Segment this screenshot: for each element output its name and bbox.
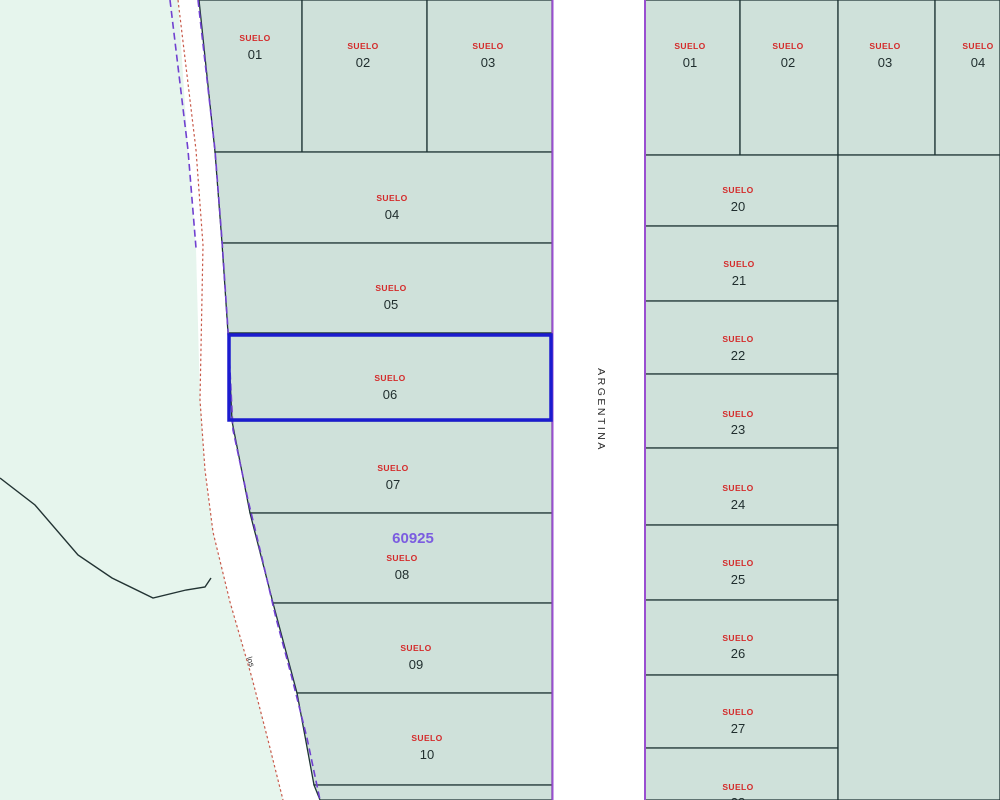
parcel-number: 06 (383, 387, 397, 402)
parcel-number: 25 (731, 572, 745, 587)
parcel-number: 23 (731, 422, 745, 437)
parcel-number: 10 (420, 747, 434, 762)
parcel-left-11-partial[interactable] (314, 785, 552, 800)
parcel-number: 22 (731, 348, 745, 363)
parcel-word: SUELO (674, 41, 705, 51)
parcel-number: 09 (409, 657, 423, 672)
parcel-number: 27 (731, 721, 745, 736)
parcel-right-large[interactable] (838, 155, 1000, 800)
right-block (645, 0, 1000, 800)
parcel-word: SUELO (722, 185, 753, 195)
parcel-word: SUELO (386, 553, 417, 563)
parcel-number: 24 (731, 497, 745, 512)
parcel-number: 01 (683, 55, 697, 70)
parcel-word: SUELO (722, 483, 753, 493)
parcel-number: 07 (386, 477, 400, 492)
parcel-number: 02 (356, 55, 370, 70)
parcel-right-02[interactable] (740, 0, 838, 155)
cadastral-map-viewport: SUELO 01 SUELO 02 SUELO 03 SUELO 04 SUEL… (0, 0, 1000, 800)
parcel-word: SUELO (722, 558, 753, 568)
parcel-number: 26 (731, 646, 745, 661)
parcel-number: 02 (781, 55, 795, 70)
parcel-word: SUELO (376, 193, 407, 203)
parcel-word: SUELO (962, 41, 993, 51)
parcel-left-03[interactable] (427, 0, 552, 152)
parcel-word: SUELO (869, 41, 900, 51)
parcel-number: 28 (731, 795, 745, 800)
parcel-word: SUELO (377, 463, 408, 473)
parcel-word: SUELO (375, 283, 406, 293)
parcel-word: SUELO (347, 41, 378, 51)
parcel-number: 04 (971, 55, 985, 70)
parcel-word: SUELO (411, 733, 442, 743)
parcel-word: SUELO (239, 33, 270, 43)
parcel-word: SUELO (722, 334, 753, 344)
parcel-number: 04 (385, 207, 399, 222)
parcel-word: SUELO (374, 373, 405, 383)
parcel-word: SUELO (722, 409, 753, 419)
parcel-number: 05 (384, 297, 398, 312)
parcel-word: SUELO (722, 707, 753, 717)
parcel-number: 01 (248, 47, 262, 62)
parcel-left-02[interactable] (302, 0, 427, 152)
parcel-number: 08 (395, 567, 409, 582)
parcel-word: SUELO (722, 782, 753, 792)
parcel-number: 20 (731, 199, 745, 214)
parcel-right-01[interactable] (645, 0, 740, 155)
parcel-number: 21 (732, 273, 746, 288)
parcel-right-03[interactable] (838, 0, 935, 155)
parcel-word: SUELO (400, 643, 431, 653)
parcel-number: 03 (481, 55, 495, 70)
parcel-word: SUELO (772, 41, 803, 51)
parcel-word: SUELO (472, 41, 503, 51)
parcel-right-04[interactable] (935, 0, 1000, 155)
parcel-word: SUELO (722, 633, 753, 643)
parcel-left-01[interactable] (199, 0, 302, 152)
parcel-number: 03 (878, 55, 892, 70)
cadastral-map-canvas: SUELO 01 SUELO 02 SUELO 03 SUELO 04 SUEL… (0, 0, 1000, 800)
street-name-label: ARGENTINA (595, 368, 607, 452)
parcel-word: SUELO (723, 259, 754, 269)
selected-parcel-code: 60925 (392, 530, 434, 547)
parcel-right-28-partial[interactable] (645, 748, 838, 800)
